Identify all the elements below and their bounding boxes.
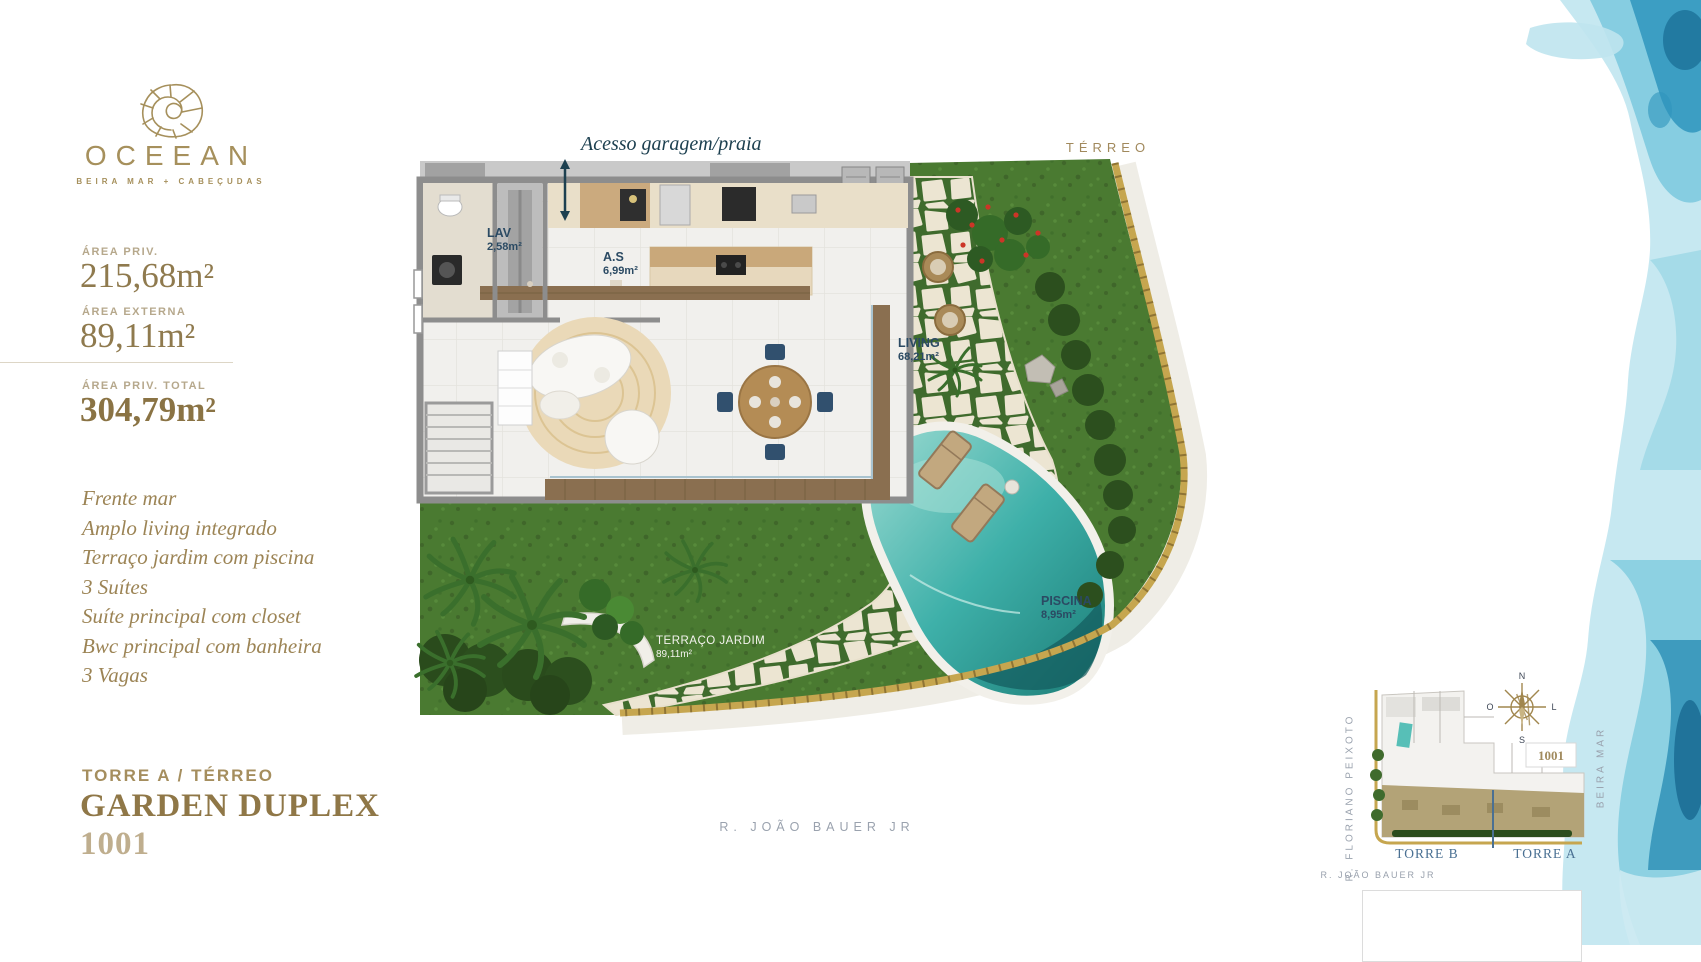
brand-name: OCEEAN [76, 140, 266, 172]
feature-item: Amplo living integrado [82, 514, 322, 544]
minimap-street-beiramar: BEIRA MAR [1596, 708, 1607, 828]
unit-badge: 1001 [1538, 748, 1564, 763]
door-recess [414, 305, 422, 333]
compass-rose-icon: N S L O [1484, 669, 1560, 745]
unit-title: GARDEN DUPLEX [80, 788, 380, 825]
double-arrow-icon [557, 158, 573, 222]
feature-item: Terraço jardim com piscina [82, 543, 322, 573]
minimap-street-floriano: R. FLORIANO PEIXOTO [1345, 713, 1356, 883]
minimap-lower-panel [1362, 890, 1582, 962]
compass-o: O [1486, 702, 1493, 712]
sidebar-divider [0, 362, 233, 363]
feature-item: Frente mar [82, 484, 322, 514]
feature-item: Bwc principal com banheira [82, 632, 322, 662]
feature-item: Suíte principal com closet [82, 602, 322, 632]
area-total-value: 304,79m² [80, 390, 216, 430]
tower-floor-label: TORRE A / TÉRREO [82, 766, 274, 786]
minimap-torre-a: TORRE A [1500, 846, 1590, 862]
side-table [1005, 480, 1019, 494]
minimap-garden [1382, 785, 1584, 837]
room-label-lav: LAV 2,58m² [487, 226, 522, 254]
area-priv-value: 215,68m² [80, 256, 214, 296]
minimap-torre-b: TORRE B [1382, 846, 1472, 862]
minimap-street-joao-bauer: R. JOÃO BAUER JR [1318, 870, 1438, 880]
room-label-terraco: TERRAÇO JARDIM 89,11m² [656, 634, 765, 662]
room-label-as: A.S 6,99m² [603, 250, 638, 278]
feature-item: 3 Vagas [82, 661, 322, 691]
access-note: Acesso garagem/praia [581, 133, 762, 156]
unit-number: 1001 [80, 826, 150, 863]
stairs [426, 403, 492, 493]
brand-tagline: BEIRA MAR + CABEÇUDAS [76, 177, 266, 186]
apartment-unit [414, 161, 910, 500]
door-recess [414, 270, 422, 298]
area-externa-value: 89,11m² [80, 316, 195, 356]
compass-l: L [1551, 702, 1556, 712]
floor-plan-graphic [410, 155, 1220, 757]
room-label-living: LIVING 68,21m² [898, 336, 940, 364]
room-label-piscina: PISCINA 8,95m² [1041, 594, 1092, 622]
brochure-page: { "brand": { "name": "OCEEAN", "tagline"… [0, 0, 1701, 945]
feature-list: Frente mar Amplo living integrado Terraç… [82, 484, 322, 691]
street-label-joao-bauer: R. JOÃO BAUER JR [667, 820, 967, 834]
nautilus-shell-icon [136, 82, 206, 140]
feature-item: 3 Suítes [82, 573, 322, 603]
dresser [498, 351, 532, 425]
compass-n: N [1519, 671, 1526, 681]
floor-level-label: TÉRREO [1048, 140, 1168, 155]
compass-s: S [1519, 735, 1525, 745]
